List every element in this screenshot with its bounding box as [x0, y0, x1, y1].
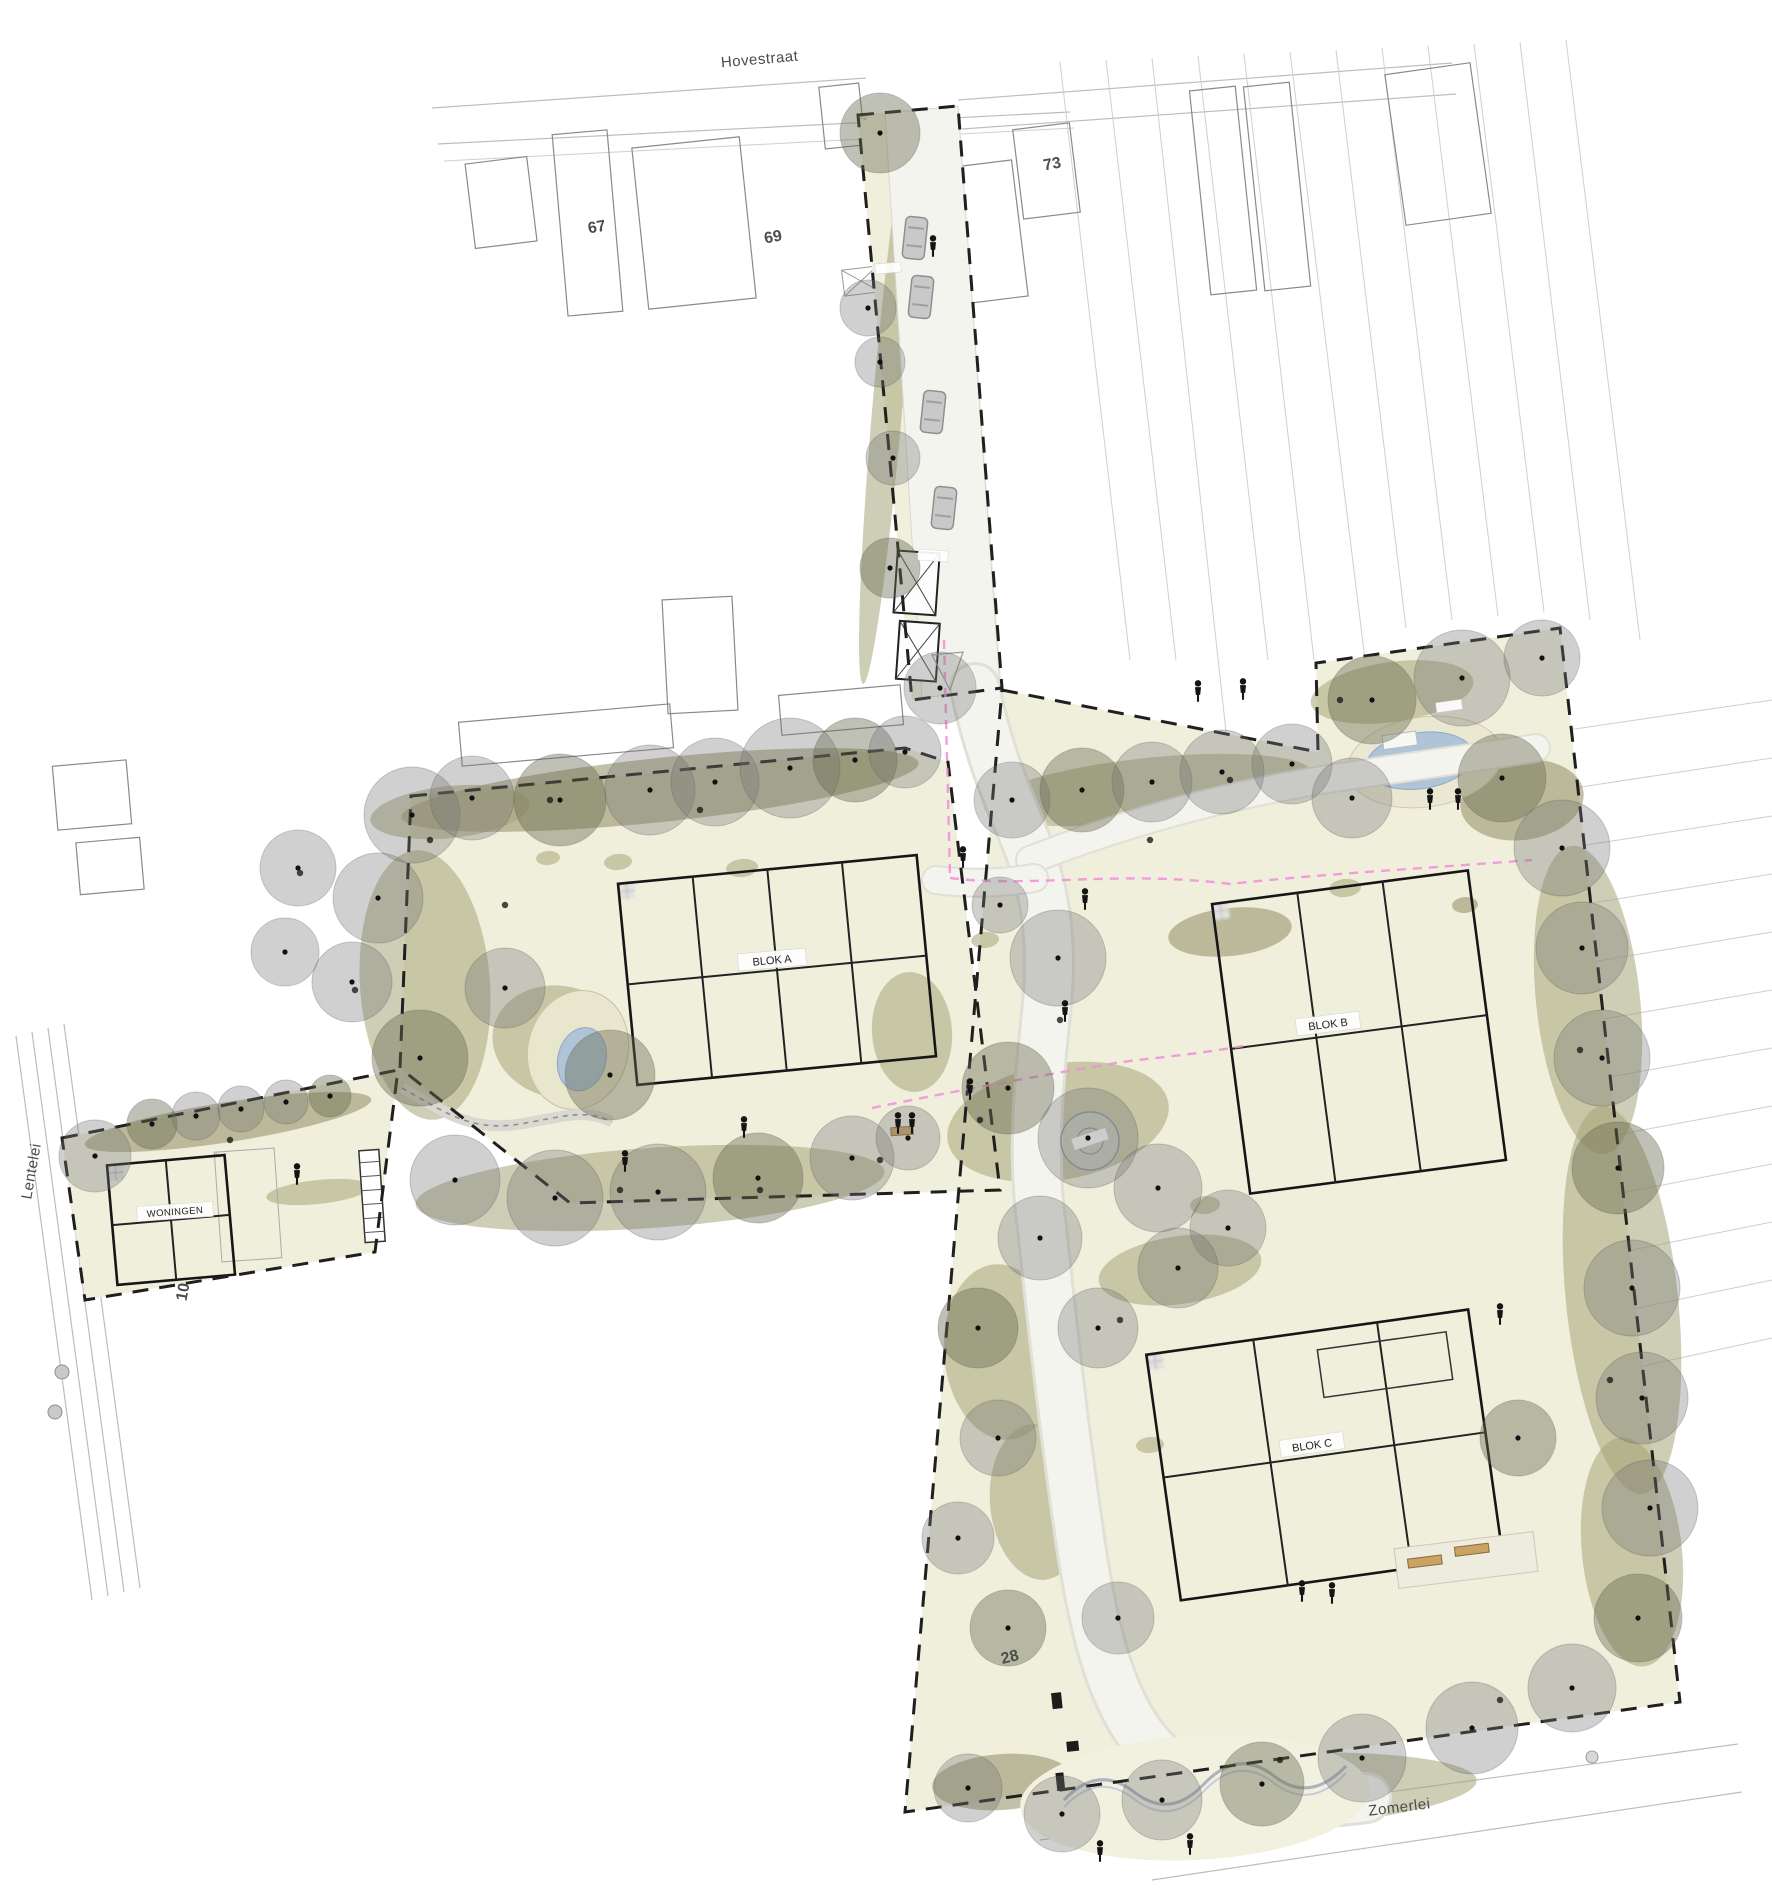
planting-dot — [977, 1117, 983, 1123]
tree-trunk-dot — [1155, 1185, 1160, 1190]
site-plan-page: Hovestraat Lentelei Zomerlei 67 69 73 10… — [0, 0, 1772, 1889]
existing-building — [632, 137, 756, 309]
existing-building — [52, 760, 131, 830]
tree-trunk-dot — [92, 1153, 97, 1158]
tree-trunk-dot — [1349, 795, 1354, 800]
planting-dot — [1147, 837, 1153, 843]
parked-car — [931, 486, 957, 530]
tree-trunk-dot — [1569, 1685, 1574, 1690]
tree-trunk-dot — [1469, 1725, 1474, 1730]
planting-dot — [1057, 1017, 1063, 1023]
tree-trunk-dot — [1095, 1325, 1100, 1330]
manhole — [1586, 1751, 1598, 1763]
tree-trunk-dot — [1079, 787, 1084, 792]
planting-dot — [697, 807, 703, 813]
tree-trunk-dot — [282, 949, 287, 954]
person-figure — [1240, 678, 1246, 700]
planting-dot — [1497, 1697, 1503, 1703]
tree-trunk-dot — [877, 359, 882, 364]
tree-trunk-dot — [149, 1121, 154, 1126]
tree-trunk-dot — [502, 985, 507, 990]
tree-trunk-dot — [1615, 1165, 1620, 1170]
tree-trunk-dot — [417, 1055, 422, 1060]
planting-dot — [502, 902, 508, 908]
tree-trunk-dot — [193, 1113, 198, 1118]
planting-dot — [427, 837, 433, 843]
planting-dot — [1277, 1757, 1283, 1763]
tree-trunk-dot — [1499, 775, 1504, 780]
tree-trunk-dot — [865, 305, 870, 310]
house-number-69: 69 — [763, 228, 784, 248]
tree-trunk-dot — [409, 812, 414, 817]
parked-car — [908, 275, 934, 319]
tree-trunk-dot — [887, 565, 892, 570]
blok-a-building — [618, 855, 936, 1085]
tree-trunk-dot — [1599, 1055, 1604, 1060]
person-figure — [1097, 1840, 1103, 1862]
tree-trunk-dot — [787, 765, 792, 770]
tree-trunk-dot — [283, 1099, 288, 1104]
manhole — [48, 1405, 62, 1419]
planting-dot — [297, 870, 303, 876]
tree-trunk-dot — [1059, 1811, 1064, 1816]
tree-trunk-dot — [1159, 1797, 1164, 1802]
street-label-hovestraat: Hovestraat — [720, 48, 799, 72]
tree-trunk-dot — [1005, 1085, 1010, 1090]
tree-trunk-dot — [937, 685, 942, 690]
tree-trunk-dot — [1369, 697, 1374, 702]
tree-trunk-dot — [997, 902, 1002, 907]
tree-trunk-dot — [647, 787, 652, 792]
parked-car — [920, 390, 946, 434]
planting-dot — [757, 1187, 763, 1193]
tree-trunk-dot — [349, 979, 354, 984]
planting-dot — [1117, 1317, 1123, 1323]
tree-trunk-dot — [1639, 1395, 1644, 1400]
person-figure — [960, 846, 966, 868]
tree-trunk-dot — [1005, 1625, 1010, 1630]
tree-trunk-dot — [1219, 769, 1224, 774]
existing-building — [662, 596, 738, 714]
street-edge-hovestraat-north — [432, 78, 866, 108]
tree-trunk-dot — [1647, 1505, 1652, 1510]
tree-trunk-dot — [877, 130, 882, 135]
tree-trunk-dot — [849, 1155, 854, 1160]
small-note-chip — [918, 549, 949, 562]
tree-trunk-dot — [607, 1072, 612, 1077]
tree-trunk-dot — [852, 757, 857, 762]
tree-trunk-dot — [902, 749, 907, 754]
tree-trunk-dot — [995, 1435, 1000, 1440]
tree-trunk-dot — [1009, 797, 1014, 802]
parked-car — [902, 216, 928, 260]
existing-building — [465, 157, 537, 249]
tree-trunk-dot — [955, 1535, 960, 1540]
tree-trunk-dot — [712, 779, 717, 784]
street-label-lentelei: Lentelei — [18, 1142, 45, 1201]
tree-trunk-dot — [375, 895, 380, 900]
tree-trunk-dot — [469, 795, 474, 800]
tree-trunk-dot — [1289, 761, 1294, 766]
tree-trunk-dot — [1539, 655, 1544, 660]
planting-dot — [877, 1157, 883, 1163]
tree-trunk-dot — [1037, 1235, 1042, 1240]
tree-trunk-dot — [1259, 1781, 1264, 1786]
tree-trunk-dot — [1225, 1225, 1230, 1230]
blok-b-building — [1212, 870, 1506, 1193]
planting-dot — [1227, 777, 1233, 783]
tree-trunk-dot — [1359, 1755, 1364, 1760]
tree-trunk-dot — [965, 1785, 970, 1790]
planting-dot — [617, 1187, 623, 1193]
tree-trunk-dot — [1559, 845, 1564, 850]
street-curb-hovestraat — [444, 128, 1074, 161]
planting-dot — [1577, 1047, 1583, 1053]
tree-trunk-dot — [1635, 1615, 1640, 1620]
tree-trunk-dot — [557, 797, 562, 802]
tree-trunk-dot — [452, 1177, 457, 1182]
small-note-chip — [875, 262, 902, 274]
manhole — [55, 1365, 69, 1379]
planting-dot — [1337, 697, 1343, 703]
tree-trunk-dot — [975, 1325, 980, 1330]
tree-trunk-dot — [755, 1175, 760, 1180]
planting-dot — [227, 1137, 233, 1143]
planting-dot — [352, 987, 358, 993]
tree-trunk-dot — [1459, 675, 1464, 680]
tree-trunk-dot — [655, 1189, 660, 1194]
tree-trunk-dot — [905, 1135, 910, 1140]
tree-trunk-dot — [552, 1195, 557, 1200]
planting-dot — [1607, 1377, 1613, 1383]
site-plan-canvas: Hovestraat Lentelei Zomerlei 67 69 73 10… — [0, 0, 1772, 1889]
house-number-67: 67 — [587, 218, 608, 238]
planting-dot — [547, 797, 553, 803]
tree-trunk-dot — [327, 1093, 332, 1098]
tree-trunk-dot — [890, 455, 895, 460]
person-figure — [1195, 680, 1201, 702]
tree-trunk-dot — [238, 1106, 243, 1111]
house-number-73: 73 — [1042, 155, 1063, 175]
tree-trunk-dot — [1629, 1285, 1634, 1290]
tree-trunk-dot — [1175, 1265, 1180, 1270]
tree-trunk-dot — [1085, 1135, 1090, 1140]
hatched-gardens-bottomleft — [95, 1255, 540, 1595]
tree-trunk-dot — [1515, 1435, 1520, 1440]
tree-trunk-dot — [1115, 1615, 1120, 1620]
tree-trunk-dot — [1055, 955, 1060, 960]
tree-trunk-dot — [1149, 779, 1154, 784]
existing-building — [76, 837, 144, 894]
house-number-10: 10 — [174, 1282, 194, 1303]
tree-trunk-dot — [1579, 945, 1584, 950]
